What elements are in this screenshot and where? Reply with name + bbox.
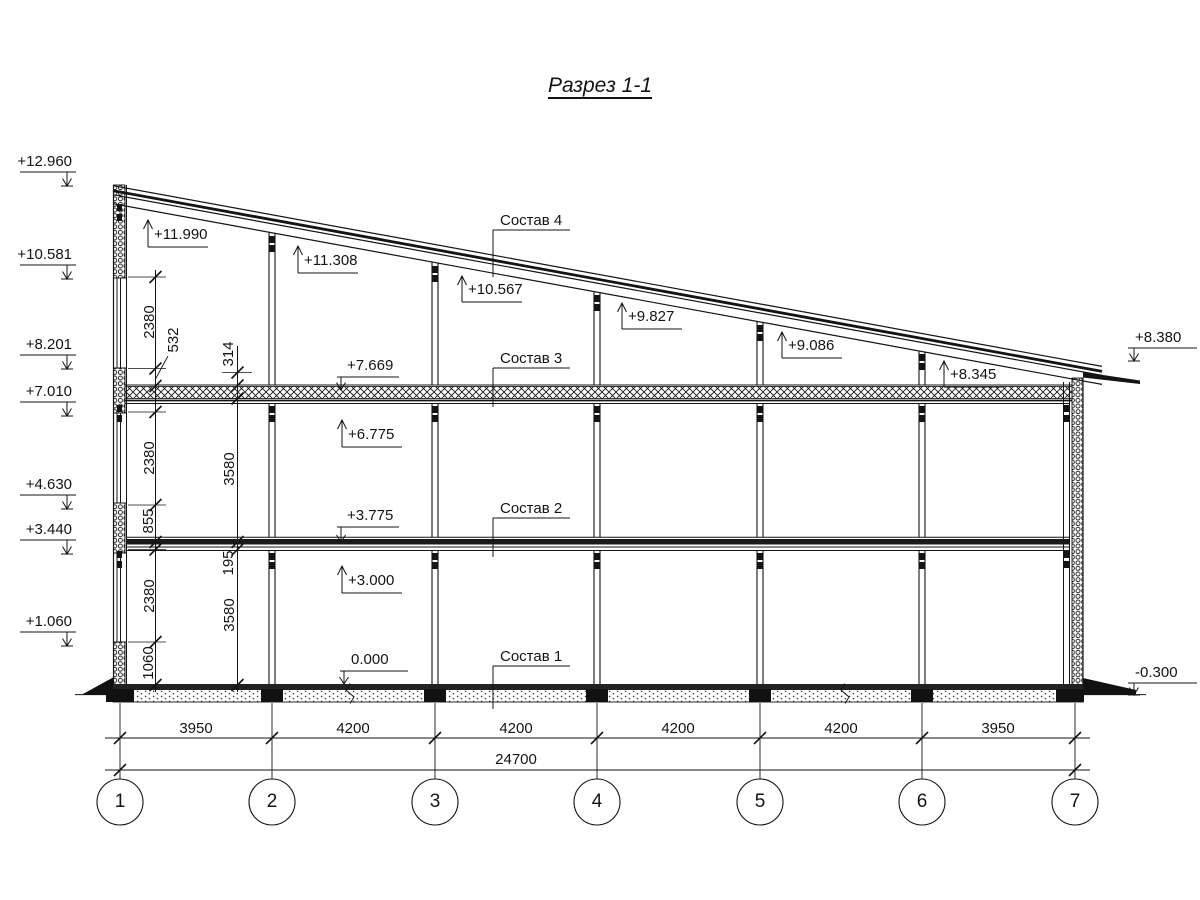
vdim-3580-a: 3580 bbox=[221, 429, 239, 509]
vdim-532: 532 bbox=[165, 300, 183, 380]
elevation-mark-roof-3: +9.827 bbox=[628, 309, 674, 325]
layer-label-4: Состав 4 bbox=[500, 213, 572, 229]
axis-number-7: 7 bbox=[1052, 792, 1098, 812]
elevation-mark-ceiling-1: +3.000 bbox=[348, 573, 394, 589]
elevation-mark-roof-5: +8.345 bbox=[950, 367, 996, 383]
drawing-title: Разрез 1-1 bbox=[480, 74, 720, 98]
right-wall bbox=[1064, 378, 1084, 694]
right-marks bbox=[1128, 348, 1197, 695]
axis-number-1: 1 bbox=[97, 792, 143, 812]
layer-label-1: Состав 1 bbox=[500, 649, 572, 665]
window-glazing bbox=[114, 278, 127, 642]
upper-slab bbox=[125, 385, 1072, 404]
ground-slab bbox=[75, 678, 1146, 704]
elevation-mark-right-1: -0.300 bbox=[1135, 665, 1178, 681]
elevation-mark-roof-1: +11.308 bbox=[304, 253, 358, 269]
elevation-mark-roof-2: +10.567 bbox=[468, 282, 523, 298]
elevation-mark-left-5: +3.440 bbox=[12, 522, 72, 538]
columns bbox=[269, 233, 925, 684]
hdim-span-2: 4200 bbox=[476, 721, 556, 737]
vdim-855: 855 bbox=[140, 481, 158, 561]
section-drawing-sheet: Разрез 1-1 +12.960 +10.581 +8.201 +7.010… bbox=[0, 0, 1200, 900]
elevation-mark-zero-level: 0.000 bbox=[351, 652, 389, 668]
elevation-mark-ceiling-0: +6.775 bbox=[348, 427, 394, 443]
left-marks bbox=[20, 172, 76, 646]
axis-number-4: 4 bbox=[574, 792, 620, 812]
elevation-mark-left-3: +7.010 bbox=[12, 384, 72, 400]
axis-number-6: 6 bbox=[899, 792, 945, 812]
layer-label-2: Состав 2 bbox=[500, 501, 572, 517]
hdim-total: 24700 bbox=[476, 752, 556, 768]
horizontal-dimensions bbox=[105, 732, 1090, 776]
elevation-mark-left-0: +12.960 bbox=[12, 154, 72, 170]
hdim-span-1: 4200 bbox=[313, 721, 393, 737]
elevation-mark-roof-4: +9.086 bbox=[788, 338, 834, 354]
vdim-1060: 1060 bbox=[140, 623, 158, 703]
elevation-mark-left-6: +1.060 bbox=[12, 614, 72, 630]
vdim-314: 314 bbox=[220, 314, 238, 394]
hdim-span-0: 3950 bbox=[156, 721, 236, 737]
elevation-mark-slab-top: +7.669 bbox=[347, 358, 393, 374]
elevation-mark-roof-0: +11.990 bbox=[154, 227, 208, 243]
elevation-mark-floor-top: +3.775 bbox=[347, 508, 393, 524]
elevation-mark-left-4: +4.630 bbox=[12, 477, 72, 493]
left-wall bbox=[114, 185, 127, 694]
vdim-3580-b: 3580 bbox=[221, 575, 239, 655]
hdim-span-5: 3950 bbox=[958, 721, 1038, 737]
left-berm bbox=[82, 678, 113, 695]
axis-number-3: 3 bbox=[412, 792, 458, 812]
dim-ticks bbox=[114, 732, 1081, 776]
hdim-span-4: 4200 bbox=[801, 721, 881, 737]
roof-band bbox=[113, 186, 1140, 385]
elevation-mark-left-1: +10.581 bbox=[12, 247, 72, 263]
elevation-mark-symbols bbox=[20, 172, 1197, 709]
elevation-mark-right-0: +8.380 bbox=[1135, 330, 1181, 346]
vdim-2380-a: 2380 bbox=[141, 282, 159, 362]
layer-label-3: Состав 3 bbox=[500, 351, 572, 367]
section-linework bbox=[0, 0, 1200, 900]
down-marks bbox=[337, 377, 409, 684]
axis-number-2: 2 bbox=[249, 792, 295, 812]
middle-floor bbox=[126, 537, 1069, 550]
hdim-span-3: 4200 bbox=[638, 721, 718, 737]
elevation-mark-left-2: +8.201 bbox=[12, 337, 72, 353]
axis-number-5: 5 bbox=[737, 792, 783, 812]
right-berm bbox=[1083, 678, 1136, 695]
